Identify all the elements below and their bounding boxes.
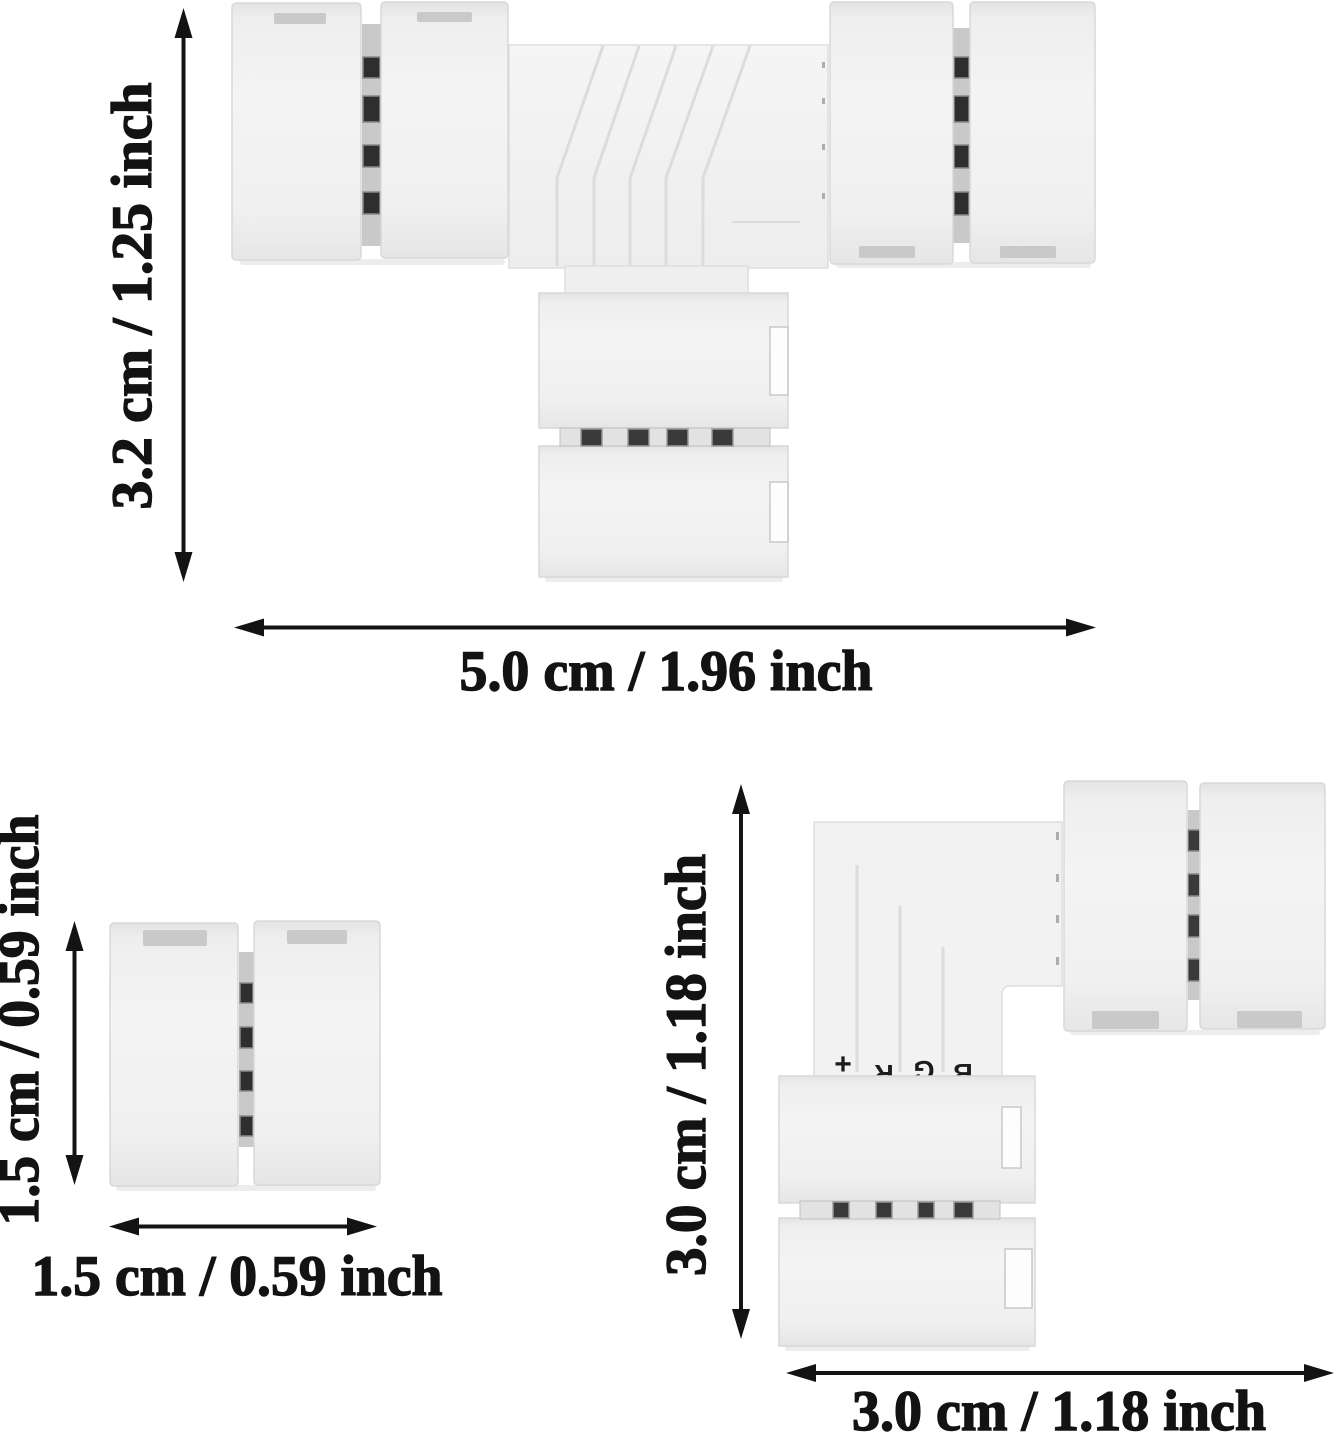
svg-text:1.5 cm / 0.59 inch: 1.5 cm / 0.59 inch [0, 815, 51, 1226]
svg-text:3.0 cm / 1.18 inch: 3.0 cm / 1.18 inch [655, 854, 718, 1276]
svg-text:1.5 cm / 0.59 inch: 1.5 cm / 0.59 inch [32, 1245, 443, 1308]
svg-text:3.0 cm / 1.18 inch: 3.0 cm / 1.18 inch [852, 1380, 1266, 1435]
svg-text:5.0 cm / 1.96 inch: 5.0 cm / 1.96 inch [460, 640, 873, 703]
svg-text:3.2 cm / 1.25 inch: 3.2 cm / 1.25 inch [101, 83, 164, 510]
